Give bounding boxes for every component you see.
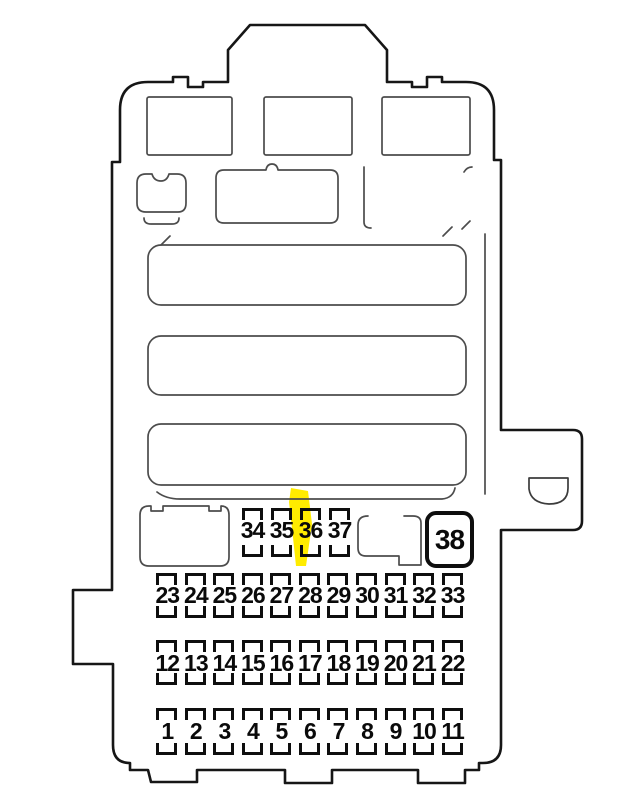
fuse-terminal-bottom (413, 743, 434, 755)
fuse-terminal-bottom (242, 545, 263, 557)
fuse-31: 31 (382, 573, 410, 618)
fuse-17: 17 (296, 640, 324, 685)
fuse-terminal-bottom (442, 606, 463, 618)
fuse-27: 27 (267, 573, 295, 618)
fuse-37: 37 (326, 508, 354, 557)
fuse-number: 33 (436, 584, 470, 606)
fuse-36: 36 (297, 508, 325, 557)
fuse-34: 34 (239, 508, 267, 557)
fuse-2: 2 (182, 708, 210, 755)
fuse-terminal-bottom (356, 606, 377, 618)
fuse-terminal-bottom (327, 743, 348, 755)
fuse-21: 21 (410, 640, 438, 685)
fuse-terminal-bottom (270, 606, 291, 618)
fuse-terminal-bottom (299, 606, 320, 618)
fuse-terminal-bottom (442, 673, 463, 685)
fuse-terminal-bottom (156, 743, 177, 755)
fuse-terminal-bottom (270, 743, 291, 755)
fuse-terminal-bottom (213, 673, 234, 685)
fuse-8: 8 (353, 708, 381, 755)
fuse-4: 4 (239, 708, 267, 755)
fuse-23: 23 (153, 573, 181, 618)
fuse-25: 25 (210, 573, 238, 618)
fuse-33: 33 (439, 573, 467, 618)
fuse-18: 18 (324, 640, 352, 685)
fuse-32: 32 (410, 573, 438, 618)
fuse-22: 22 (439, 640, 467, 685)
fuse-6: 6 (296, 708, 324, 755)
fuse-terminal-bottom (156, 606, 177, 618)
fuse-terminal-bottom (299, 673, 320, 685)
fuse-1: 1 (153, 708, 181, 755)
fuse-terminal-bottom (356, 673, 377, 685)
fuse-terminal-bottom (327, 606, 348, 618)
fuse-26: 26 (239, 573, 267, 618)
fuse-28: 28 (296, 573, 324, 618)
fuse-13: 13 (182, 640, 210, 685)
fuse-terminal-bottom (242, 743, 263, 755)
fuse-11: 11 (439, 708, 467, 755)
fuse-terminal-bottom (185, 606, 206, 618)
fuse-terminal-bottom (413, 673, 434, 685)
fuse-30: 30 (353, 573, 381, 618)
fuse-terminal-bottom (270, 673, 291, 685)
fuse-terminal-bottom (271, 545, 292, 557)
fuse-24: 24 (182, 573, 210, 618)
fuse-terminal-bottom (329, 545, 350, 557)
fuse-15: 15 (239, 640, 267, 685)
fuse-5: 5 (267, 708, 295, 755)
fuse-terminal-bottom (356, 743, 377, 755)
fuse-terminal-bottom (156, 673, 177, 685)
fuse-terminal-bottom (385, 743, 406, 755)
fuse-terminal-bottom (442, 743, 463, 755)
fuse-terminal-bottom (185, 743, 206, 755)
fuse-16: 16 (267, 640, 295, 685)
fuse-12: 12 (153, 640, 181, 685)
fuse-number: 37 (323, 519, 357, 541)
fuse-grid: 3435363723242526272829303132331213141516… (0, 0, 626, 804)
fuse-number: 22 (436, 652, 470, 674)
fuse-38-number: 38 (435, 524, 464, 556)
fuse-terminal-bottom (385, 606, 406, 618)
fuse-terminal-bottom (300, 545, 321, 557)
fuse-terminal-bottom (413, 606, 434, 618)
fuse-terminal-bottom (242, 606, 263, 618)
fuse-10: 10 (410, 708, 438, 755)
fuse-35: 35 (268, 508, 296, 557)
fuse-29: 29 (324, 573, 352, 618)
fuse-9: 9 (382, 708, 410, 755)
fuse-14: 14 (210, 640, 238, 685)
fuse-7: 7 (324, 708, 352, 755)
fuse-terminal-bottom (242, 673, 263, 685)
fuse-terminal-bottom (213, 606, 234, 618)
fuse-terminal-bottom (385, 673, 406, 685)
fuse-3: 3 (210, 708, 238, 755)
fuse-box-diagram: 3435363723242526272829303132331213141516… (0, 0, 626, 804)
fuse-20: 20 (382, 640, 410, 685)
fuse-terminal-bottom (213, 743, 234, 755)
fuse-terminal-bottom (185, 673, 206, 685)
fuse-terminal-bottom (299, 743, 320, 755)
fuse-terminal-bottom (327, 673, 348, 685)
fuse-number: 11 (436, 720, 470, 742)
fuse-38: 38 (425, 511, 474, 568)
fuse-19: 19 (353, 640, 381, 685)
